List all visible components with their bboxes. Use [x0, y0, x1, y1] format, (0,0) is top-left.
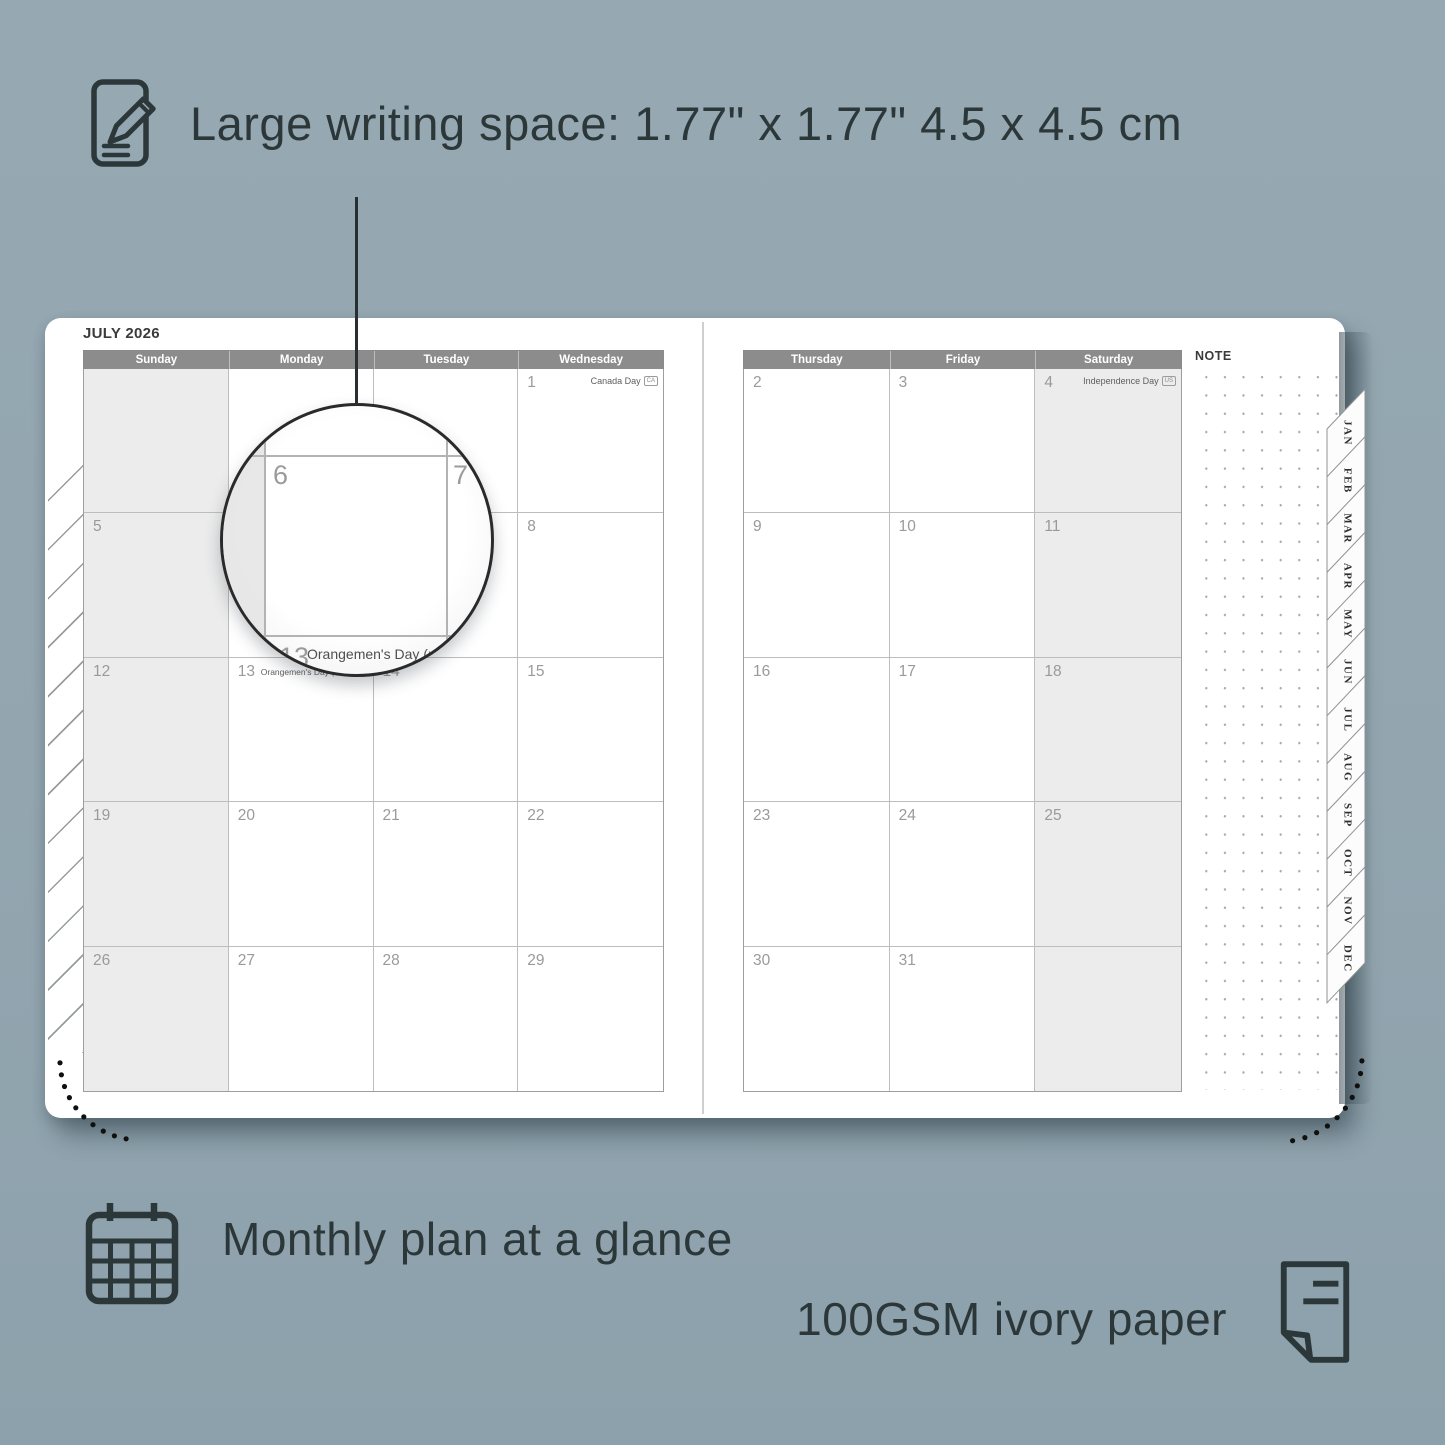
calendar-cell: 24 [890, 802, 1036, 946]
paper-caption: 100GSM ivory paper [796, 1292, 1227, 1346]
calendar-cell: 22 [518, 802, 663, 946]
corner-arc-dot [112, 1133, 117, 1138]
corner-arc-dot [1325, 1123, 1330, 1128]
corner-arc-dot [62, 1084, 67, 1089]
date-number: 11 [1044, 518, 1060, 536]
magnified-holiday-badge: UK [456, 647, 477, 661]
holiday-text: Independence Day [1083, 376, 1159, 386]
holiday-badge: US [1162, 376, 1176, 386]
magnified-weekend-column [223, 406, 265, 674]
calendar-cell: 20 [229, 802, 374, 946]
month-tab-label: AUG [1341, 753, 1353, 782]
date-number: 16 [753, 663, 770, 681]
center-fold-line [702, 322, 704, 1114]
calendar-cell: 18 [1035, 658, 1181, 802]
monthly-plan-caption: Monthly plan at a glance [222, 1212, 733, 1266]
month-tab-label: JAN [1341, 420, 1353, 446]
corner-arc-dot [1302, 1135, 1307, 1140]
calendar-cell: 17 [890, 658, 1036, 802]
month-tab-label: APR [1341, 563, 1353, 590]
calendar-cell: 30 [744, 947, 890, 1091]
calendar-cell: 16 [744, 658, 890, 802]
corner-arc-dot [1314, 1130, 1319, 1135]
calendar-cell: 11 [1035, 513, 1181, 657]
date-number: 3 [899, 374, 908, 392]
date-number: 4 [1044, 374, 1053, 392]
binding-hatch-marks [48, 453, 85, 1053]
left-day-header-row: SundayMondayTuesdayWednesday [83, 350, 664, 371]
date-number: 21 [383, 807, 400, 825]
calendar-cell: 27 [229, 947, 374, 1091]
date-number: 15 [527, 663, 544, 681]
day-header-thursday: Thursday [744, 351, 890, 370]
calendar-cell: 15 [518, 658, 663, 802]
calendar-cell: 5 [84, 513, 229, 657]
holiday-badge: CA [644, 376, 658, 386]
date-number: 23 [753, 807, 770, 825]
note-label: NOTE [1195, 349, 1237, 363]
calendar-cell: 26 [84, 947, 229, 1091]
right-calendar-grid: 234Independence DayUS9101116171823242530… [743, 369, 1182, 1092]
calendar-cell: 10 [890, 513, 1036, 657]
calendar-cell: 28 [374, 947, 519, 1091]
note-dot-grid [1193, 362, 1343, 1090]
magnified-grid-line [264, 406, 266, 674]
corner-arc-dot [67, 1095, 72, 1100]
month-tab-label: NOV [1341, 897, 1353, 926]
day-header-wednesday: Wednesday [518, 351, 663, 370]
day-header-monday: Monday [229, 351, 374, 370]
date-number: 27 [238, 952, 255, 970]
day-header-friday: Friday [890, 351, 1036, 370]
date-number: 17 [899, 663, 916, 681]
calendar-cell: 13Orangemen's Day (n.i.)UK [229, 658, 374, 802]
date-number: 22 [527, 807, 544, 825]
calendar-cell: 21 [374, 802, 519, 946]
date-number: 30 [753, 952, 770, 970]
calendar-cell: 12 [84, 658, 229, 802]
calendar-cell: 19 [84, 802, 229, 946]
magnified-date-number: 13 [279, 642, 309, 673]
calendar-icon [84, 1196, 180, 1308]
magnified-date-number: 6 [273, 460, 288, 491]
month-tab-label: JUN [1341, 659, 1353, 685]
month-tab-label: MAR [1341, 513, 1353, 544]
date-number: 1 [527, 374, 536, 392]
corner-arc-dot [1290, 1138, 1295, 1143]
date-number: 31 [899, 952, 916, 970]
holiday-label: Canada DayCA [591, 376, 658, 386]
corner-arc-dot [101, 1129, 106, 1134]
callout-connector-line [355, 197, 358, 405]
month-tab-label: DEC [1341, 945, 1353, 973]
paper-sheet-icon [1274, 1258, 1356, 1366]
date-number: 26 [93, 952, 110, 970]
corner-arc-dot [81, 1114, 86, 1119]
date-number: 29 [527, 952, 544, 970]
magnifier-circle: 6 7 13 Orangemen's Day (n.i.) UK [220, 403, 494, 677]
calendar-cell [84, 369, 229, 513]
date-number: 19 [93, 807, 110, 825]
writing-pencil-icon [82, 74, 174, 170]
month-tab-label: FEB [1341, 468, 1353, 494]
date-number: 20 [238, 807, 255, 825]
writing-space-caption: Large writing space: 1.77" x 1.77" 4.5 x… [190, 96, 1182, 151]
calendar-cell: 1Canada DayCA [518, 369, 663, 513]
date-number: 2 [753, 374, 762, 392]
date-number: 28 [383, 952, 400, 970]
magnified-holiday-label: Orangemen's Day (n.i.) UK [307, 646, 477, 662]
corner-arc-dot [57, 1060, 62, 1065]
calendar-cell: 3 [890, 369, 1036, 513]
calendar-cell: 8 [518, 513, 663, 657]
date-number: 12 [93, 663, 110, 681]
calendar-cell: 14 [374, 658, 519, 802]
magnified-grid-line [446, 406, 448, 674]
corner-arc-dot [1343, 1106, 1348, 1111]
corner-arc-dot [1335, 1115, 1340, 1120]
day-header-saturday: Saturday [1035, 351, 1181, 370]
date-number: 18 [1044, 663, 1061, 681]
date-number: 10 [899, 518, 916, 536]
corner-arc-dot [73, 1105, 78, 1110]
corner-arc-dot [90, 1122, 95, 1127]
month-tab-label: JUL [1341, 707, 1353, 732]
magnified-holiday-text: Orangemen's Day (n.i.) [307, 646, 451, 662]
calendar-cell: 9 [744, 513, 890, 657]
calendar-cell: 25 [1035, 802, 1181, 946]
calendar-cell: 29 [518, 947, 663, 1091]
holiday-label: Independence DayUS [1083, 376, 1176, 386]
right-day-header-row: ThursdayFridaySaturday [743, 350, 1182, 371]
month-tab-strip: JANFEBMARAPRMAYJUNJULAUGSEPOCTNOVDEC [1326, 384, 1366, 1014]
date-number: 9 [753, 518, 762, 536]
corner-arc-dot [124, 1136, 129, 1141]
magnified-date-number: 7 [453, 460, 468, 491]
calendar-cell: 31 [890, 947, 1036, 1091]
corner-arc-dot [59, 1072, 64, 1077]
planner-spread: JULY 2026 SundayMondayTuesdayWednesday 1… [45, 318, 1345, 1118]
date-number: 25 [1044, 807, 1061, 825]
month-title: JULY 2026 [83, 325, 160, 342]
day-header-tuesday: Tuesday [374, 351, 519, 370]
month-tab-label: SEP [1341, 803, 1353, 828]
date-number: 24 [899, 807, 916, 825]
calendar-cell: 4Independence DayUS [1035, 369, 1181, 513]
day-header-sunday: Sunday [84, 351, 229, 370]
date-number: 8 [527, 518, 536, 536]
calendar-cell [1035, 947, 1181, 1091]
holiday-text: Canada Day [591, 376, 641, 386]
date-number: 5 [93, 518, 102, 536]
month-tab-label: MAY [1341, 609, 1353, 639]
month-tab-label: OCT [1341, 849, 1353, 877]
calendar-cell: 2 [744, 369, 890, 513]
calendar-cell: 23 [744, 802, 890, 946]
